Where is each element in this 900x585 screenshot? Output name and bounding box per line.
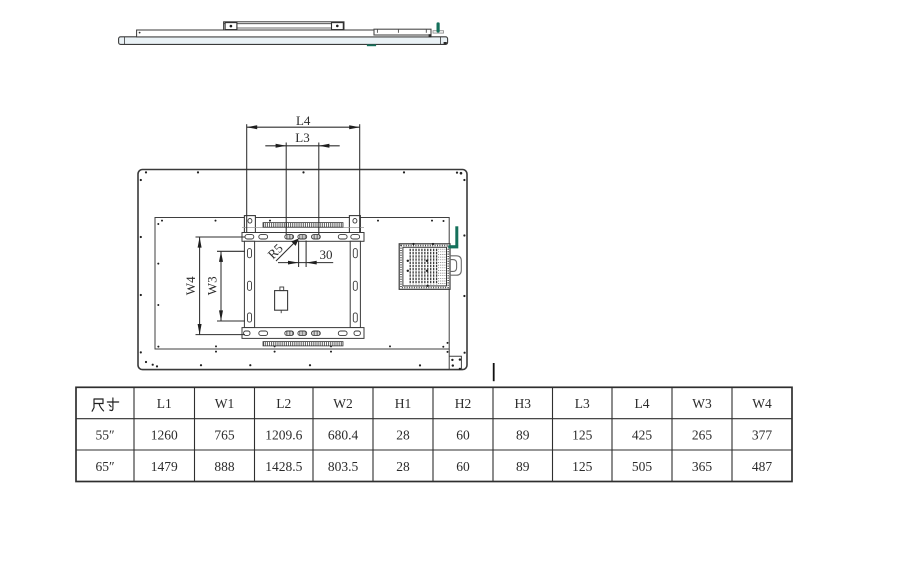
svg-text:W4: W4	[183, 276, 198, 295]
svg-text:125: 125	[572, 459, 593, 474]
svg-text:60: 60	[456, 459, 470, 474]
svg-text:89: 89	[516, 459, 530, 474]
svg-text:888: 888	[214, 459, 235, 474]
svg-text:125: 125	[572, 427, 593, 442]
svg-text:365: 365	[692, 459, 713, 474]
svg-text:377: 377	[752, 427, 773, 442]
svg-text:265: 265	[692, 427, 713, 442]
svg-text:L3: L3	[295, 130, 309, 145]
svg-text:H1: H1	[395, 396, 412, 411]
svg-text:W2: W2	[333, 396, 353, 411]
svg-text:H3: H3	[515, 396, 532, 411]
svg-text:30: 30	[320, 247, 333, 262]
svg-text:L4: L4	[296, 113, 311, 128]
svg-text:425: 425	[632, 427, 653, 442]
svg-text:65″: 65″	[95, 459, 114, 474]
svg-text:89: 89	[516, 427, 530, 442]
svg-text:L3: L3	[575, 396, 590, 411]
svg-text:W4: W4	[752, 396, 772, 411]
svg-text:28: 28	[396, 427, 410, 442]
svg-text:765: 765	[214, 427, 235, 442]
svg-text:1479: 1479	[151, 459, 178, 474]
svg-text:H2: H2	[455, 396, 472, 411]
svg-text:W1: W1	[215, 396, 235, 411]
svg-text:L2: L2	[276, 396, 291, 411]
svg-text:55″: 55″	[95, 427, 114, 442]
svg-text:28: 28	[396, 459, 410, 474]
svg-text:803.5: 803.5	[328, 459, 359, 474]
svg-text:W3: W3	[692, 396, 712, 411]
svg-text:W3: W3	[204, 276, 219, 295]
svg-text:1428.5: 1428.5	[265, 459, 302, 474]
svg-text:505: 505	[632, 459, 653, 474]
svg-text:1209.6: 1209.6	[265, 427, 302, 442]
svg-text:680.4: 680.4	[328, 427, 359, 442]
svg-text:1260: 1260	[151, 427, 178, 442]
svg-text:60: 60	[456, 427, 470, 442]
svg-text:L4: L4	[635, 396, 650, 411]
svg-text:487: 487	[752, 459, 773, 474]
svg-text:L1: L1	[157, 396, 172, 411]
